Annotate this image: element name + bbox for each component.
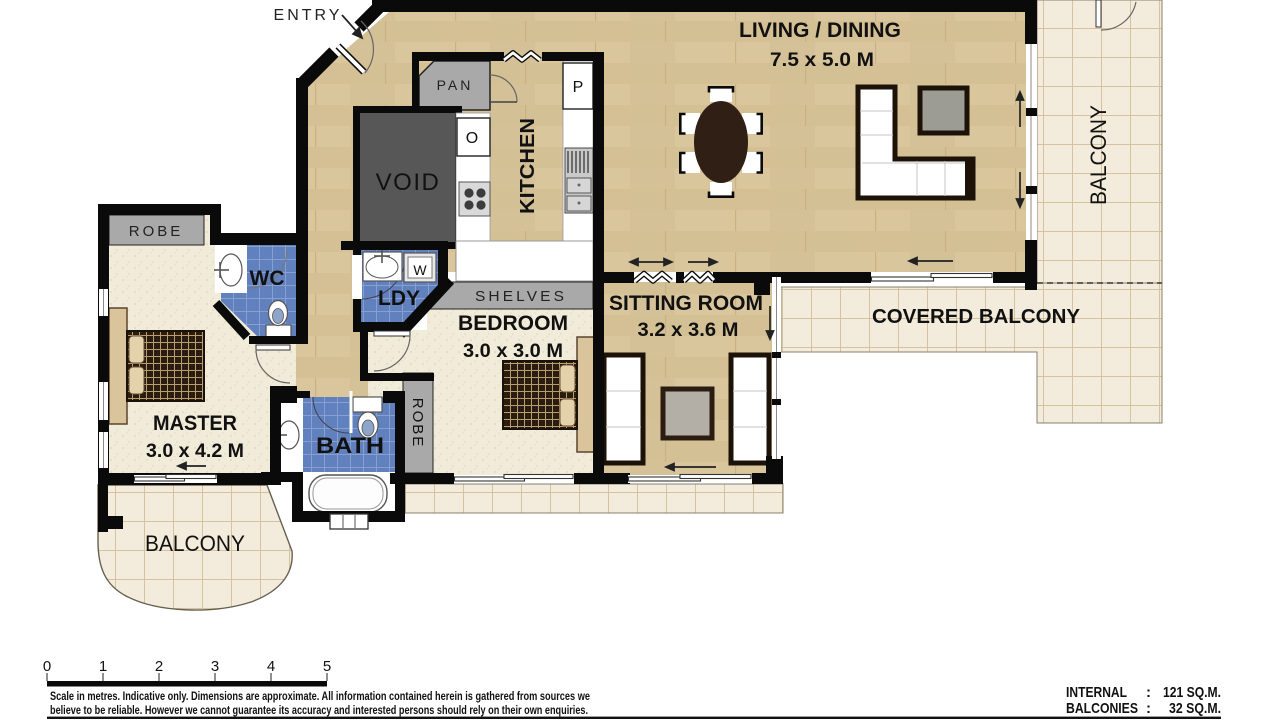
svg-text:Scale in metres. Indicative o: Scale in metres. Indicative only. Dimens…: [50, 691, 590, 703]
svg-text:7.5 x 5.0 M: 7.5 x 5.0 M: [770, 50, 874, 71]
svg-text:5: 5: [323, 658, 331, 675]
svg-text:121 SQ.M.: 121 SQ.M.: [1163, 684, 1221, 701]
svg-text:2: 2: [155, 658, 163, 675]
svg-text:ENTRY: ENTRY: [274, 7, 343, 24]
svg-text:WC: WC: [250, 267, 285, 290]
svg-text:INTERNAL: INTERNAL: [1066, 684, 1127, 701]
svg-text:0: 0: [43, 658, 51, 675]
svg-text:3.0 x 4.2 M: 3.0 x 4.2 M: [146, 441, 244, 462]
svg-text:KITCHEN: KITCHEN: [517, 118, 539, 214]
svg-text:1: 1: [99, 658, 107, 675]
svg-text::: :: [1146, 684, 1151, 701]
svg-text:SHELVES: SHELVES: [475, 288, 567, 305]
svg-text:32 SQ.M.: 32 SQ.M.: [1169, 700, 1221, 717]
svg-text:PAN: PAN: [437, 77, 474, 93]
svg-text:BALCONIES: BALCONIES: [1066, 700, 1138, 717]
svg-text:O: O: [466, 130, 478, 147]
svg-text:MASTER: MASTER: [153, 412, 237, 435]
svg-text:ROBE: ROBE: [129, 223, 184, 240]
svg-text:3.2 x 3.6 M: 3.2 x 3.6 M: [638, 320, 739, 341]
svg-text:3: 3: [211, 658, 219, 675]
svg-text:COVERED BALCONY: COVERED BALCONY: [872, 306, 1081, 328]
svg-text:3.0 x 3.0 M: 3.0 x 3.0 M: [463, 341, 563, 362]
svg-text:LIVING / DINING: LIVING / DINING: [739, 19, 901, 42]
svg-text:W: W: [413, 262, 427, 278]
svg-text:BATH: BATH: [316, 433, 384, 458]
svg-text::: :: [1146, 700, 1151, 717]
svg-text:ROBE: ROBE: [409, 398, 426, 449]
svg-text:believe to be reliable. Howev: believe to be reliable. However we canno…: [50, 705, 588, 717]
svg-text:BALCONY: BALCONY: [1086, 105, 1111, 205]
svg-text:SITTING ROOM: SITTING ROOM: [609, 292, 763, 315]
svg-text:BALCONY: BALCONY: [145, 531, 245, 556]
svg-text:4: 4: [267, 658, 275, 675]
svg-text:LDY: LDY: [378, 287, 420, 310]
svg-text:P: P: [573, 79, 584, 96]
svg-text:VOID: VOID: [376, 169, 441, 196]
svg-text:BEDROOM: BEDROOM: [458, 312, 568, 335]
